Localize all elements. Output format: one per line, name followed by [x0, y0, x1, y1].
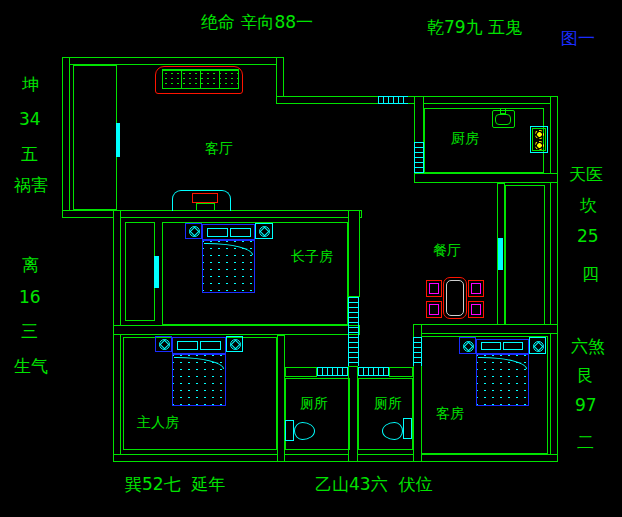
annotation-top-center: 绝命 辛向88一 [201, 14, 313, 31]
wall-segment [113, 325, 360, 335]
wall-segment [414, 173, 558, 183]
wall-segment [348, 210, 360, 297]
window-toilet1 [317, 367, 348, 376]
kitchen-outline [424, 108, 544, 173]
annotation-right: 坎 [580, 197, 597, 214]
room-label-eldest-son: 长子房 [291, 249, 333, 263]
annotation-left: 三 [21, 323, 38, 340]
window-guest-left [413, 337, 422, 366]
sink-basin [495, 114, 511, 125]
figure-label: 图一 [561, 30, 595, 47]
window-toilet2 [358, 367, 389, 376]
toilet-bowl-icon [382, 422, 403, 440]
annotation-left: 16 [19, 289, 41, 306]
cad-floorplan-canvas[interactable]: 客厅 厨房 餐厅 长子房 主人房 厕所 厕所 客房 绝命 辛向88一 乾79九 … [0, 0, 622, 517]
nightstand-compass-icon [529, 337, 546, 354]
dining-chair [468, 280, 484, 297]
annotation-right: 六煞 [571, 338, 605, 355]
room-label-living: 客厅 [205, 141, 233, 155]
toilet2-outline [358, 378, 413, 450]
window-kitchen-left [414, 142, 424, 173]
toilet-tank-icon [403, 418, 412, 439]
wall-segment [113, 210, 121, 462]
nightstand-compass-icon [155, 336, 172, 352]
wall-segment [277, 335, 285, 462]
pillow [207, 228, 228, 237]
pillow [177, 341, 198, 350]
annotation-right: 97 [575, 397, 597, 414]
room-label-guest: 客房 [436, 406, 464, 420]
toilet1-outline [285, 378, 350, 450]
nightstand-compass-icon [255, 223, 273, 239]
closet-top-outline [73, 65, 117, 210]
planter-plants [162, 69, 239, 89]
annotation-bottom-left: 巽52七 延年 [125, 476, 225, 493]
annotation-left: 祸害 [14, 177, 48, 194]
dining-chair [468, 301, 484, 318]
room-label-toilet-2: 厕所 [374, 396, 402, 410]
burner-icon [535, 130, 544, 139]
nightstand-compass-icon [226, 336, 243, 352]
wall-segment [413, 324, 558, 334]
wall-segment [113, 454, 558, 462]
door-closet-mid [154, 256, 159, 288]
room-label-kitchen: 厨房 [451, 131, 479, 145]
tv-stand [196, 203, 215, 211]
room-label-dining: 餐厅 [433, 243, 461, 257]
wall-segment [389, 367, 413, 377]
pillow [200, 341, 221, 350]
window-corridor [348, 297, 359, 366]
wall-segment [285, 367, 317, 377]
dining-chair [426, 301, 442, 318]
room-label-toilet-1: 厕所 [300, 396, 328, 410]
annotation-top-right: 乾79九 五鬼 [427, 19, 522, 36]
nightstand-compass-icon [459, 337, 476, 354]
wall-segment [62, 57, 70, 218]
door-stairwell [498, 238, 503, 270]
pillow [503, 342, 523, 350]
annotation-right: 二 [577, 434, 594, 451]
wall-segment [62, 210, 362, 218]
annotation-left: 坤 [22, 76, 39, 93]
wall-segment [62, 57, 284, 65]
annotation-right: 25 [577, 228, 599, 245]
annotation-left: 34 [19, 111, 41, 128]
room-label-master: 主人房 [137, 415, 179, 429]
dining-chair [426, 280, 442, 297]
wall-segment [550, 96, 558, 462]
dining-table [443, 277, 467, 319]
annotation-right: 四 [582, 266, 599, 283]
faucet-icon [500, 108, 506, 114]
annotation-bottom-center: 乙山43六 伏位 [315, 476, 432, 493]
pillow [481, 342, 501, 350]
annotation-right: 艮 [577, 367, 594, 384]
burner-icon [535, 141, 544, 150]
annotation-left: 离 [22, 257, 39, 274]
window-kitchen-top [378, 96, 408, 104]
toilet-tank-icon [285, 420, 294, 441]
tv-icon [192, 193, 218, 203]
annotation-left: 五 [21, 146, 38, 163]
annotation-left: 生气 [14, 358, 48, 375]
closet-mid-outline [125, 222, 155, 321]
stairwell-outline [505, 185, 545, 325]
door-closet-top [116, 123, 120, 157]
nightstand-compass-icon [185, 223, 202, 239]
annotation-right: 天医 [569, 166, 603, 183]
pillow [230, 228, 251, 237]
